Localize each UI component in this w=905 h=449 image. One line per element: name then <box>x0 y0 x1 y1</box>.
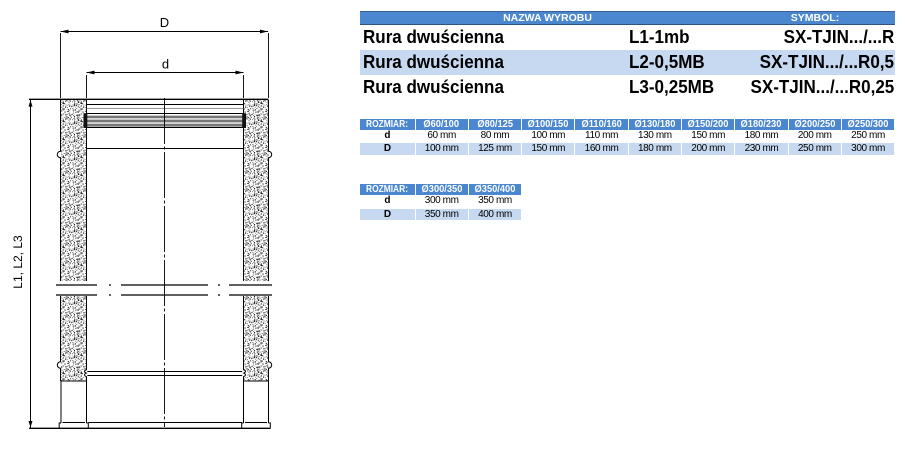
svg-text:L1, L2, L3: L1, L2, L3 <box>11 235 25 289</box>
svg-text:d: d <box>162 57 169 72</box>
svg-text:D: D <box>160 15 169 30</box>
